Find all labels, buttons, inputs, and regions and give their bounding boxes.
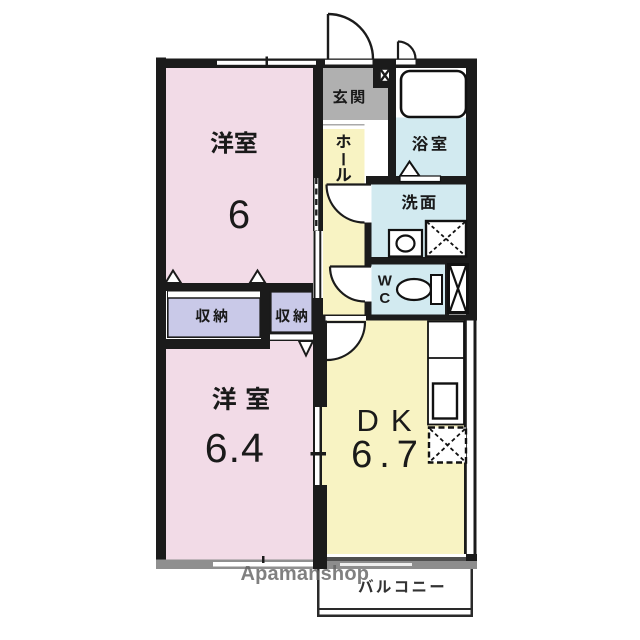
svg-text:DK: DK: [356, 403, 423, 438]
svg-text:6.4: 6.4: [205, 425, 265, 471]
svg-text:W: W: [378, 273, 393, 290]
svg-text:Apamanshop: Apamanshop: [241, 563, 370, 585]
svg-text:C: C: [379, 290, 390, 307]
svg-text:6.7: 6.7: [351, 434, 425, 476]
svg-text:6: 6: [228, 193, 250, 237]
